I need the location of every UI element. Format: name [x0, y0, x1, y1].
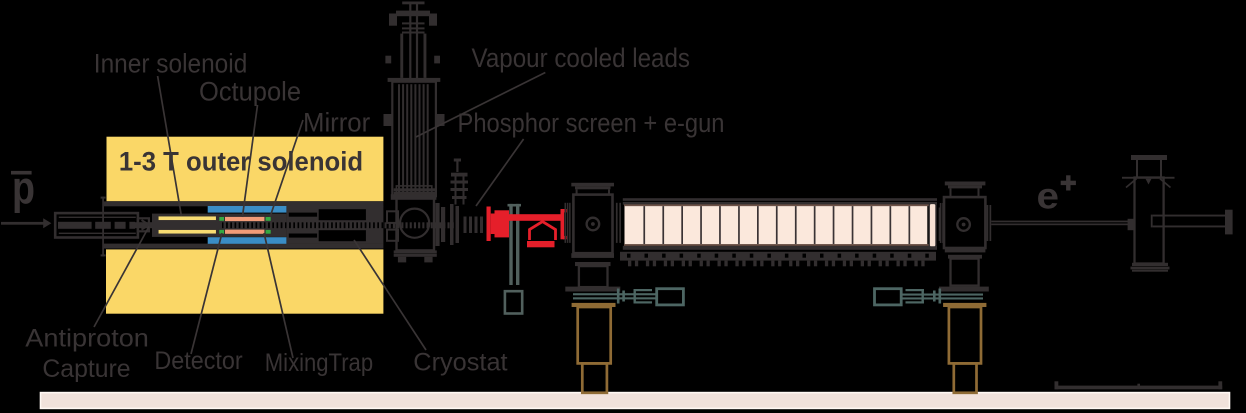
svg-text:Phosphor screen + e-gun: Phosphor screen + e-gun: [458, 108, 725, 138]
svg-text:p: p: [12, 162, 35, 214]
svg-text:Vapour cooled leads: Vapour cooled leads: [472, 43, 691, 73]
svg-text:Detector: Detector: [154, 347, 242, 375]
svg-text:Antiproton: Antiproton: [25, 324, 149, 352]
svg-text:Inner solenoid: Inner solenoid: [94, 48, 248, 78]
svg-text:MixingTrap: MixingTrap: [265, 349, 373, 377]
svg-text:1-3 T outer solenoid: 1-3 T outer solenoid: [119, 147, 363, 177]
svg-text:Cryostat: Cryostat: [413, 349, 507, 377]
svg-text:e: e: [1037, 175, 1060, 216]
svg-text:Octupole: Octupole: [199, 77, 301, 107]
svg-text:Mirror: Mirror: [303, 107, 370, 137]
svg-text:Capture: Capture: [42, 355, 130, 383]
